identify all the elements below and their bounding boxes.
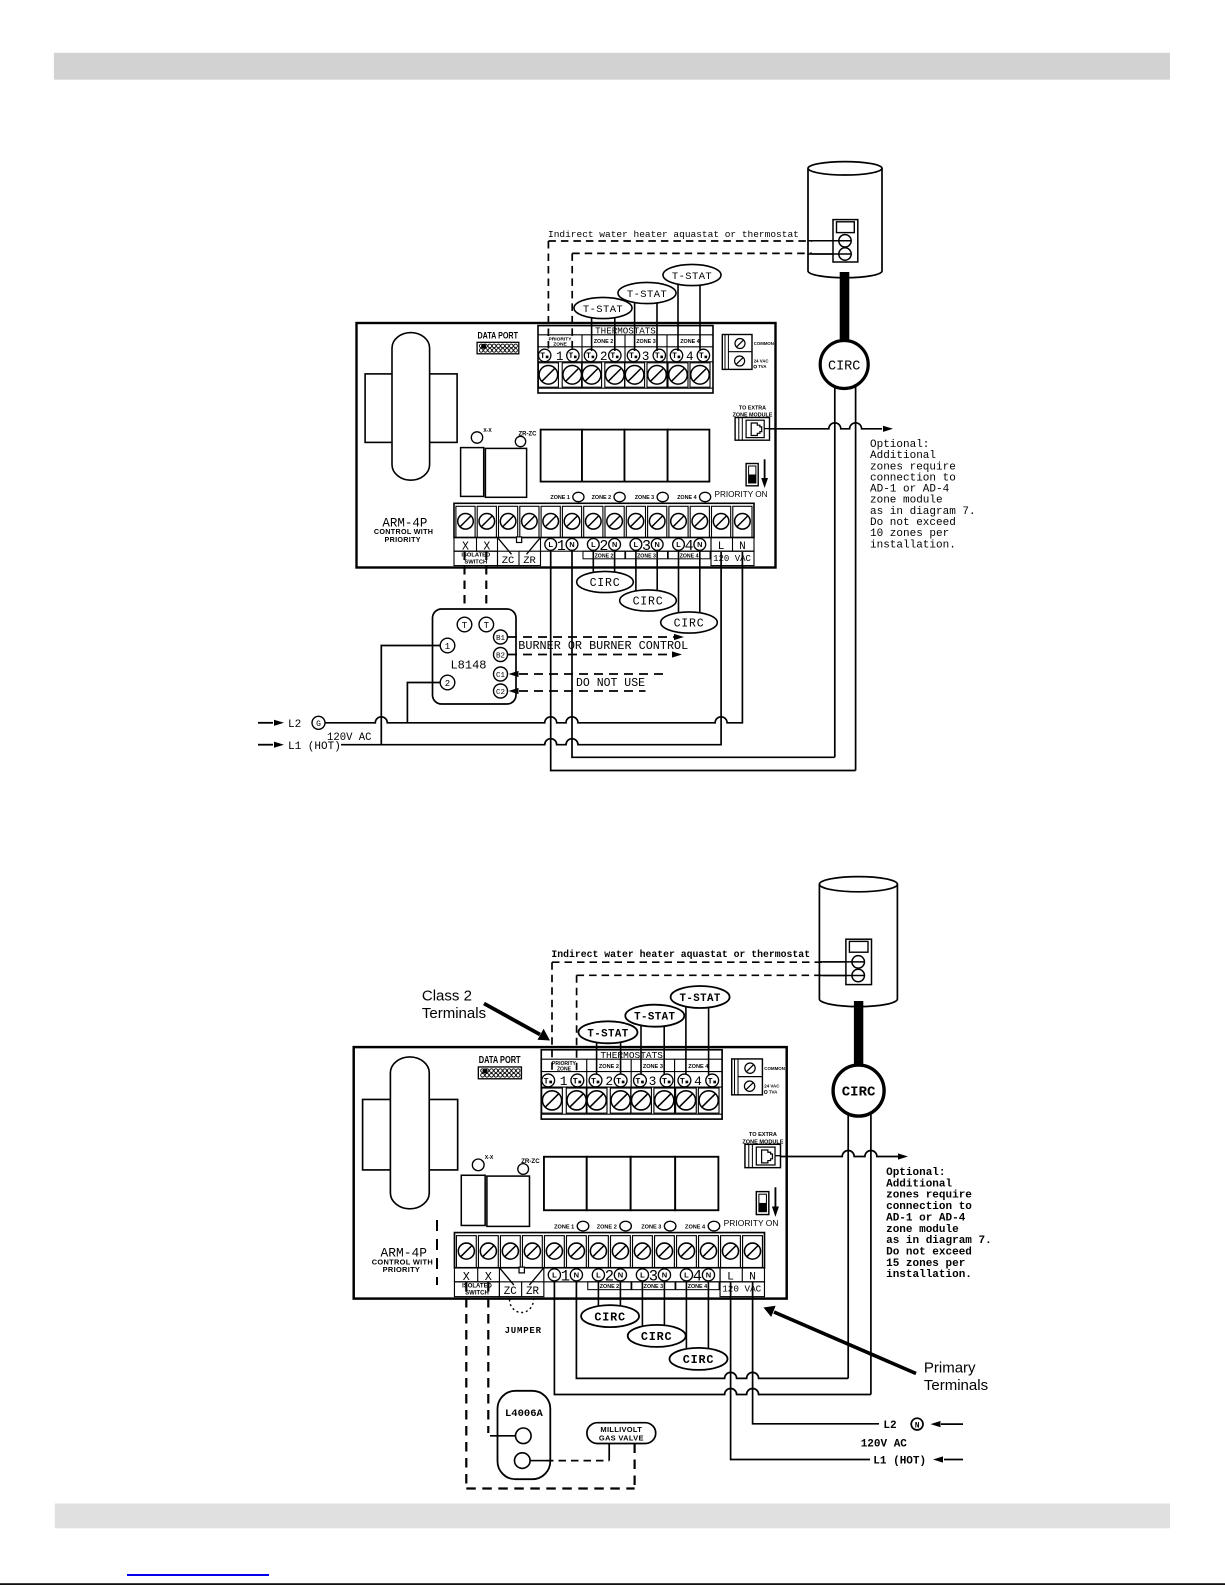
svg-text:G: G <box>316 720 321 729</box>
svg-text:as in diagram 7.: as in diagram 7. <box>870 506 976 518</box>
svg-text:BURNER OR BURNER CONTROL: BURNER OR BURNER CONTROL <box>518 639 688 653</box>
svg-text:zone module: zone module <box>886 1224 959 1236</box>
svg-text:connection to: connection to <box>870 472 956 484</box>
svg-text:CIRC: CIRC <box>828 359 860 374</box>
svg-text:T-STAT: T-STAT <box>587 1028 628 1040</box>
svg-text:T-STAT: T-STAT <box>679 993 720 1005</box>
svg-text:T-STAT: T-STAT <box>634 1012 675 1024</box>
svg-text:Class 2: Class 2 <box>422 988 472 1005</box>
svg-text:L4006A: L4006A <box>505 1408 544 1420</box>
svg-text:Additional: Additional <box>870 450 936 462</box>
svg-text:Indirect water heater aquastat: Indirect water heater aquastat or thermo… <box>551 949 810 960</box>
svg-text:Primary: Primary <box>924 1360 976 1377</box>
svg-text:T-STAT: T-STAT <box>672 271 712 283</box>
svg-text:AD-1 or AD-4: AD-1 or AD-4 <box>886 1212 966 1224</box>
svg-text:GAS VALVE: GAS VALVE <box>599 1434 644 1443</box>
svg-text:L1 (HOT): L1 (HOT) <box>288 741 341 753</box>
svg-text:Optional:: Optional: <box>886 1167 945 1179</box>
svg-text:T: T <box>462 621 468 631</box>
svg-text:L2: L2 <box>288 719 301 731</box>
svg-text:T: T <box>484 621 490 631</box>
svg-text:2: 2 <box>445 679 450 689</box>
svg-text:120V AC: 120V AC <box>861 1438 908 1450</box>
svg-text:CIRC: CIRC <box>633 596 664 609</box>
svg-text:Terminals: Terminals <box>422 1005 486 1022</box>
svg-text:L1 (HOT): L1 (HOT) <box>873 1456 926 1468</box>
svg-text:C2: C2 <box>496 689 505 697</box>
svg-text:C1: C1 <box>496 672 506 680</box>
svg-text:Terminals: Terminals <box>924 1377 988 1394</box>
svg-text:JUMPER: JUMPER <box>505 1326 542 1336</box>
svg-text:L8148: L8148 <box>450 659 486 673</box>
svg-text:MILLIVOLT: MILLIVOLT <box>600 1425 642 1434</box>
svg-text:Indirect water heater aquastat: Indirect water heater aquastat or thermo… <box>548 229 799 240</box>
svg-text:zones require: zones require <box>886 1190 972 1202</box>
svg-text:1: 1 <box>445 642 450 652</box>
svg-text:CIRC: CIRC <box>590 577 621 590</box>
svg-text:N: N <box>915 1421 920 1430</box>
svg-text:CIRC: CIRC <box>674 618 705 631</box>
svg-text:T-STAT: T-STAT <box>627 289 667 301</box>
svg-text:installation.: installation. <box>886 1269 972 1281</box>
svg-text:B1: B1 <box>496 635 506 643</box>
svg-text:as in diagram 7.: as in diagram 7. <box>886 1235 992 1247</box>
svg-text:CIRC: CIRC <box>683 1353 715 1367</box>
svg-text:installation.: installation. <box>870 539 956 551</box>
svg-text:CIRC: CIRC <box>641 1330 673 1344</box>
svg-text:B2: B2 <box>496 652 505 660</box>
svg-text:15 zones per: 15 zones per <box>886 1258 965 1270</box>
svg-text:CIRC: CIRC <box>594 1310 626 1324</box>
svg-text:Do not exceed: Do not exceed <box>886 1247 972 1259</box>
svg-text:Additional: Additional <box>886 1178 952 1190</box>
svg-text:DO NOT USE: DO NOT USE <box>576 677 645 690</box>
svg-text:T-STAT: T-STAT <box>583 304 623 316</box>
svg-text:L2: L2 <box>883 1420 896 1432</box>
svg-text:10 zones per: 10 zones per <box>870 528 949 540</box>
svg-text:connection to: connection to <box>886 1201 972 1213</box>
svg-text:CIRC: CIRC <box>842 1085 876 1101</box>
